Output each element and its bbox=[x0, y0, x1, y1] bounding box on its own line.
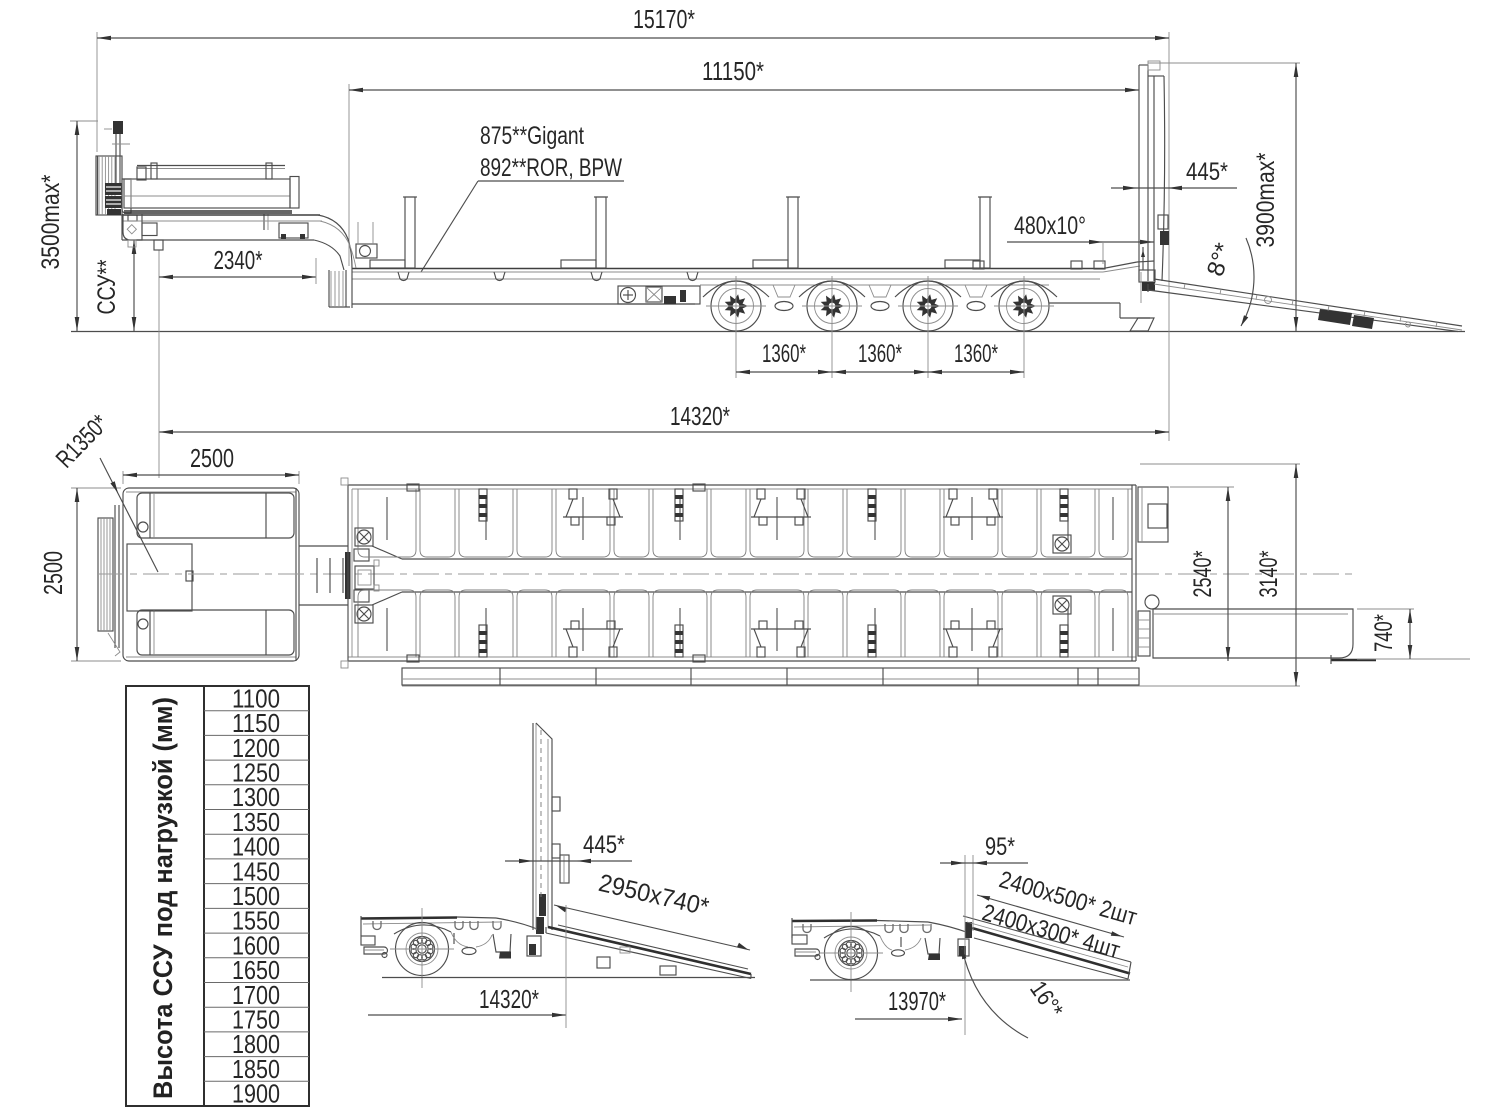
svg-text:3500max*: 3500max* bbox=[37, 174, 65, 269]
svg-text:Высота ССУ под нагрузкой (мм): Высота ССУ под нагрузкой (мм) bbox=[148, 697, 178, 1099]
svg-text:892**ROR, BPW: 892**ROR, BPW bbox=[480, 154, 622, 182]
svg-text:2500: 2500 bbox=[38, 551, 68, 595]
svg-text:15170*: 15170* bbox=[633, 4, 695, 34]
svg-text:2500: 2500 bbox=[190, 443, 234, 473]
svg-text:445*: 445* bbox=[583, 831, 625, 859]
svg-text:14320*: 14320* bbox=[479, 984, 539, 1014]
svg-text:11150*: 11150* bbox=[702, 56, 764, 86]
svg-text:740*: 740* bbox=[1370, 614, 1398, 652]
svg-text:1900: 1900 bbox=[232, 1079, 280, 1109]
svg-text:1360*: 1360* bbox=[954, 340, 998, 368]
svg-text:1360*: 1360* bbox=[858, 340, 902, 368]
svg-text:445*: 445* bbox=[1186, 158, 1228, 186]
svg-text:875**Gigant: 875**Gigant bbox=[480, 122, 584, 150]
svg-text:3900max*: 3900max* bbox=[1252, 152, 1280, 247]
svg-text:1360*: 1360* bbox=[762, 340, 806, 368]
svg-text:2340*: 2340* bbox=[214, 245, 263, 275]
svg-text:95*: 95* bbox=[985, 833, 1015, 861]
svg-text:3140*: 3140* bbox=[1255, 550, 1283, 597]
svg-text:ССУ**: ССУ** bbox=[93, 259, 121, 314]
svg-text:14320*: 14320* bbox=[670, 401, 730, 431]
svg-text:2540*: 2540* bbox=[1189, 550, 1217, 597]
svg-text:480x10°: 480x10° bbox=[1014, 212, 1086, 240]
svg-text:13970*: 13970* bbox=[888, 986, 946, 1016]
